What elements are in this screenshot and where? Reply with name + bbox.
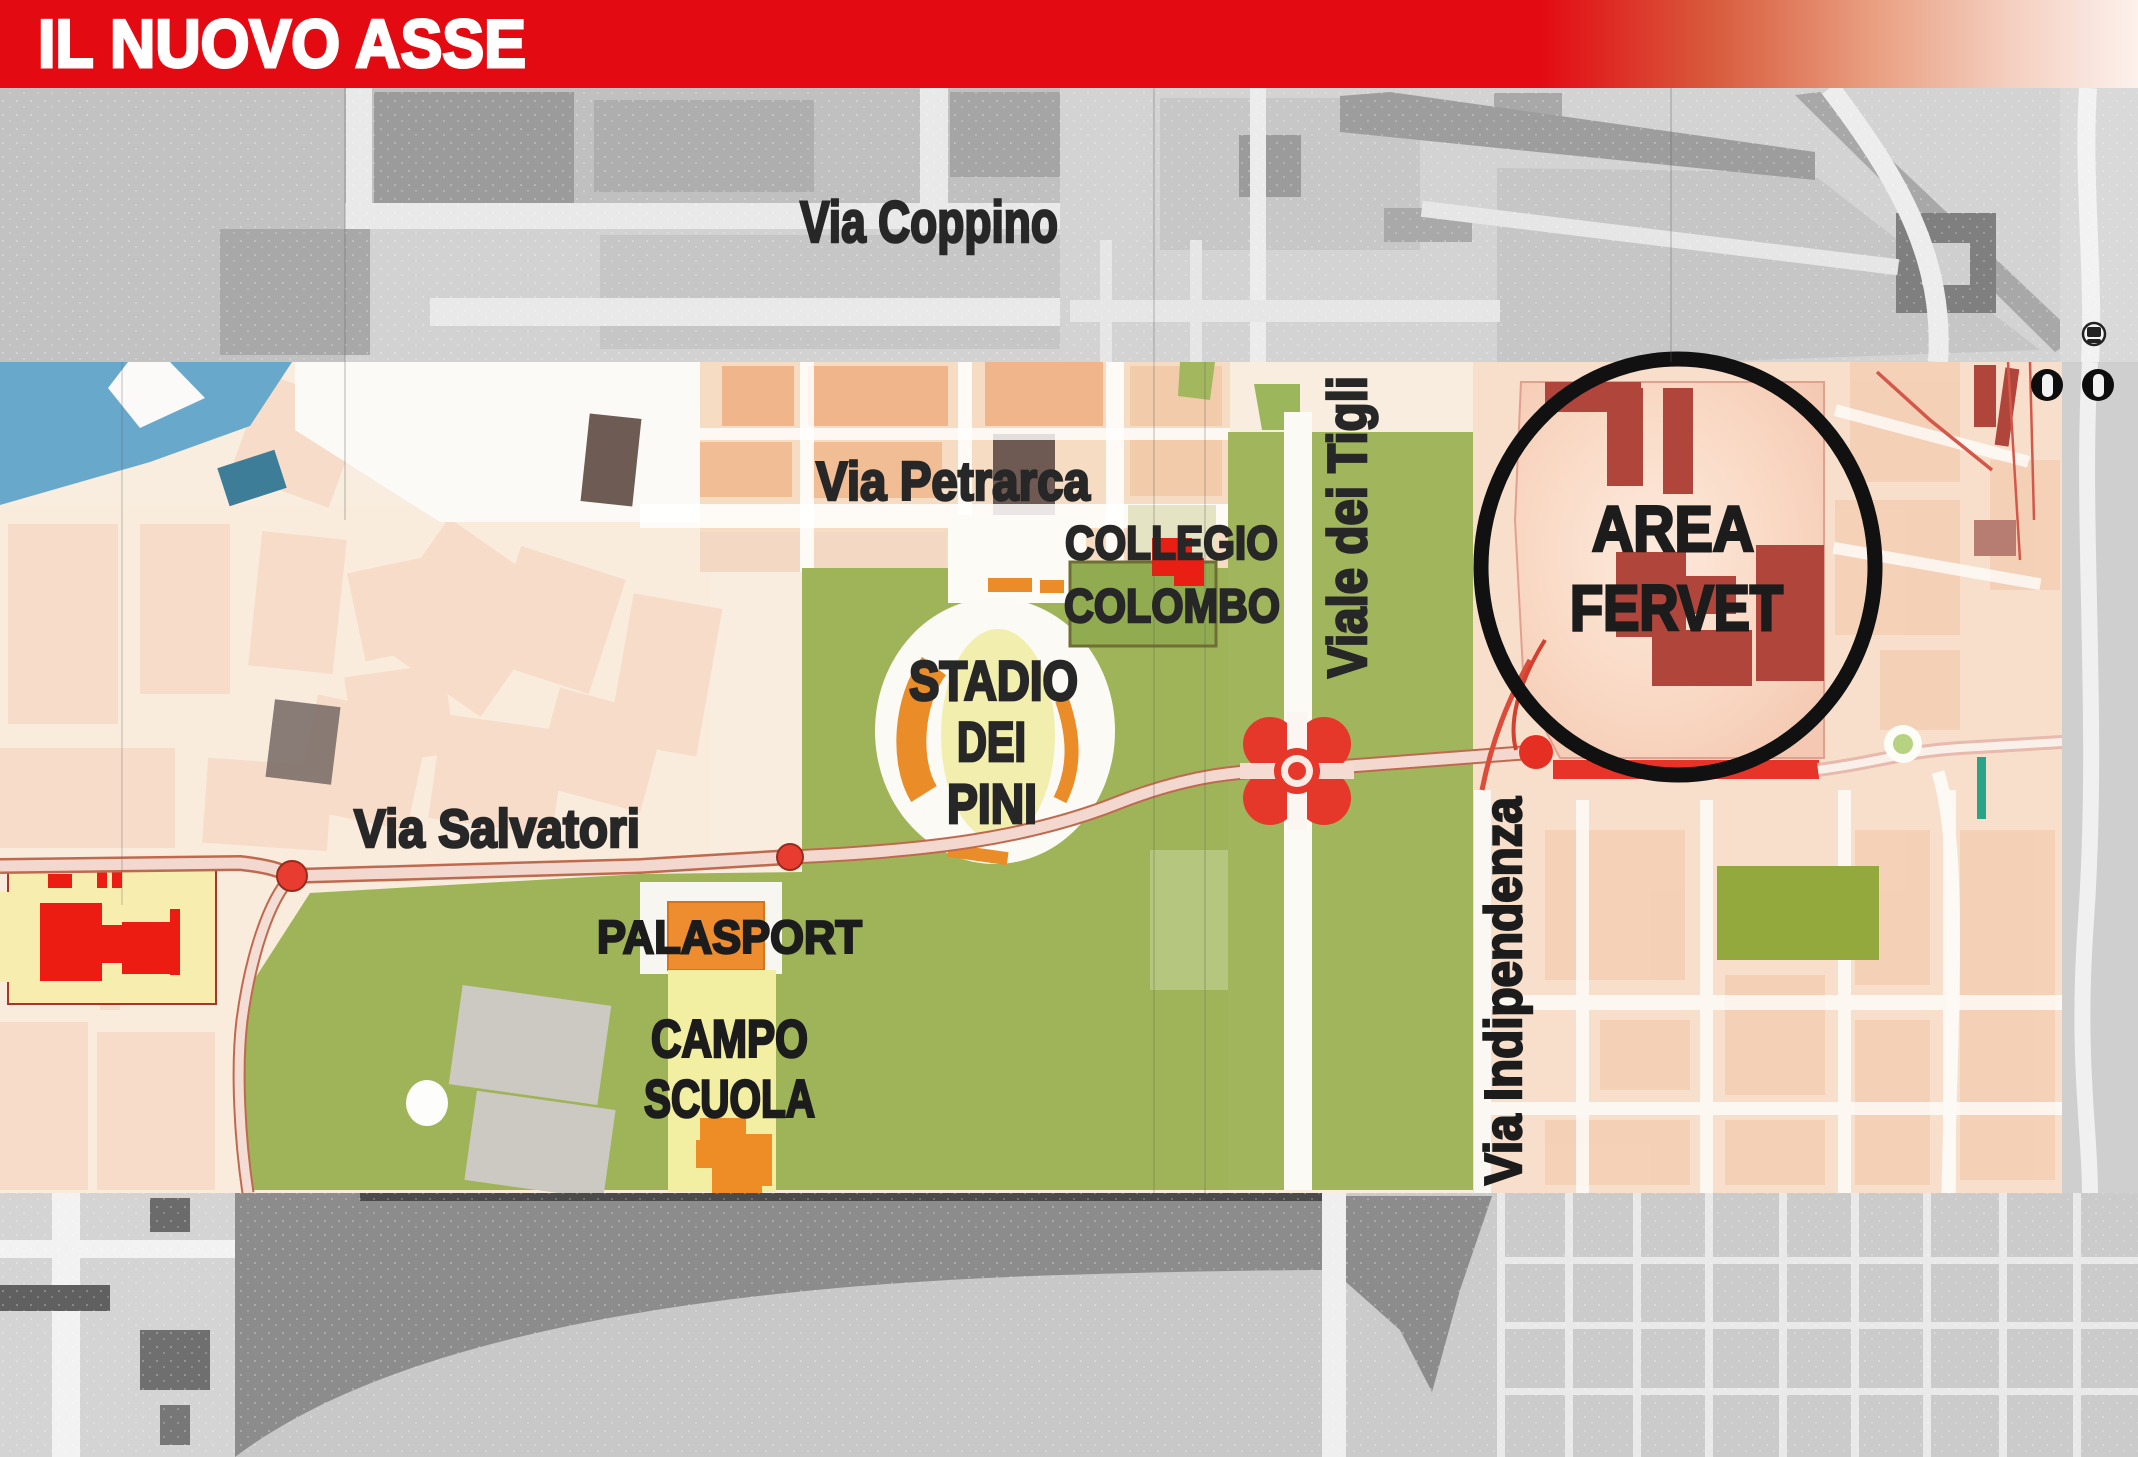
svg-text:SCUOLA: SCUOLA	[644, 1070, 815, 1129]
svg-text:Via Salvatori: Via Salvatori	[354, 799, 640, 859]
svg-text:IL NUOVO ASSE: IL NUOVO ASSE	[38, 6, 526, 82]
svg-text:Viale dei Tigli: Viale dei Tigli	[1316, 376, 1378, 678]
svg-text:AREA: AREA	[1592, 493, 1754, 565]
svg-text:DEI: DEI	[957, 710, 1026, 773]
svg-text:Via Indipendenza: Via Indipendenza	[1475, 796, 1533, 1185]
svg-text:STADIO: STADIO	[909, 649, 1078, 712]
svg-text:COLLEGIO: COLLEGIO	[1065, 516, 1278, 569]
svg-text:PINI: PINI	[947, 772, 1037, 835]
svg-text:PALASPORT: PALASPORT	[597, 911, 862, 963]
svg-text:COLOMBO: COLOMBO	[1064, 579, 1280, 632]
svg-text:CAMPO: CAMPO	[651, 1010, 808, 1069]
svg-text:FERVET: FERVET	[1570, 572, 1783, 644]
svg-text:Via Petrarca: Via Petrarca	[816, 450, 1090, 512]
svg-text:Via Coppino: Via Coppino	[800, 190, 1058, 255]
